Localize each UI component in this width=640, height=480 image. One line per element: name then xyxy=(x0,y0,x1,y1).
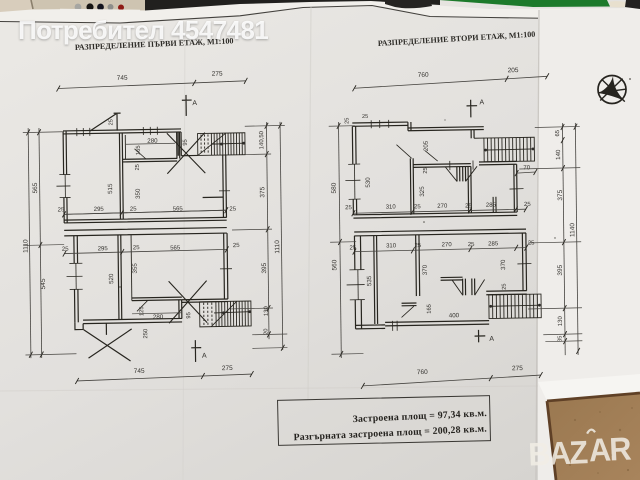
svg-text:1140: 1140 xyxy=(569,223,576,237)
svg-text:535: 535 xyxy=(366,275,373,286)
svg-text:395: 395 xyxy=(557,264,564,275)
svg-text:325: 325 xyxy=(419,186,426,197)
svg-text:25: 25 xyxy=(135,164,141,170)
svg-text:565: 565 xyxy=(170,245,181,251)
svg-text:275: 275 xyxy=(212,71,223,78)
svg-text:Потребител 4547481: Потребител 4547481 xyxy=(18,15,268,45)
svg-text:310: 310 xyxy=(386,204,397,210)
svg-text:370: 370 xyxy=(500,259,507,270)
svg-text:25: 25 xyxy=(229,207,236,213)
svg-text:A: A xyxy=(480,99,485,106)
svg-text:25: 25 xyxy=(502,283,508,289)
svg-text:25: 25 xyxy=(423,167,429,173)
svg-text:515: 515 xyxy=(107,183,114,194)
svg-text:565: 565 xyxy=(173,206,184,212)
svg-text:25: 25 xyxy=(345,205,352,211)
svg-text:560: 560 xyxy=(331,259,338,270)
svg-text:70: 70 xyxy=(523,165,530,171)
svg-text:375: 375 xyxy=(259,186,266,197)
svg-text:25: 25 xyxy=(524,202,531,208)
svg-text:25: 25 xyxy=(344,118,350,124)
svg-text:520: 520 xyxy=(108,273,115,284)
svg-text:280: 280 xyxy=(147,138,158,145)
svg-text:355: 355 xyxy=(132,263,139,274)
svg-text:A: A xyxy=(489,336,494,343)
svg-text:275: 275 xyxy=(222,365,233,372)
svg-text:545: 545 xyxy=(40,278,47,289)
svg-text:25: 25 xyxy=(362,114,368,120)
svg-text:760: 760 xyxy=(418,72,429,79)
svg-text:530: 530 xyxy=(365,177,372,188)
svg-text:375: 375 xyxy=(557,189,564,200)
svg-text:580: 580 xyxy=(331,182,338,193)
svg-text:25: 25 xyxy=(233,243,240,249)
svg-text:25: 25 xyxy=(58,207,65,213)
svg-text:395: 395 xyxy=(261,262,268,273)
svg-text:95: 95 xyxy=(183,139,189,146)
svg-text:165: 165 xyxy=(427,304,433,314)
svg-text:140: 140 xyxy=(555,149,562,160)
svg-text:565: 565 xyxy=(32,182,39,193)
svg-text:1110: 1110 xyxy=(274,240,281,254)
svg-text:760: 760 xyxy=(417,369,428,376)
svg-text:A: A xyxy=(192,100,197,107)
svg-text:285: 285 xyxy=(486,203,497,209)
svg-text:275: 275 xyxy=(512,365,523,372)
svg-text:270: 270 xyxy=(437,204,448,210)
svg-text:25: 25 xyxy=(465,203,472,209)
svg-text:25: 25 xyxy=(414,243,421,249)
svg-text:270: 270 xyxy=(442,242,453,248)
svg-text:BAZ: BAZ xyxy=(528,433,589,473)
svg-text:295: 295 xyxy=(94,207,105,213)
svg-text:25: 25 xyxy=(130,207,137,213)
svg-text:350: 350 xyxy=(135,188,142,199)
svg-text:745: 745 xyxy=(134,368,145,375)
svg-text:20: 20 xyxy=(263,328,269,334)
svg-text:95: 95 xyxy=(186,312,192,319)
svg-text:165: 165 xyxy=(136,145,142,155)
svg-text:A: A xyxy=(202,353,207,360)
svg-text:25: 25 xyxy=(62,247,69,253)
svg-text:25: 25 xyxy=(133,245,140,251)
svg-text:285: 285 xyxy=(488,241,499,247)
svg-text:1110: 1110 xyxy=(22,239,29,253)
svg-text:280: 280 xyxy=(153,314,164,321)
svg-text:310: 310 xyxy=(386,243,397,249)
svg-text:140,50: 140,50 xyxy=(259,130,265,149)
svg-text:295: 295 xyxy=(98,246,109,252)
svg-text:205: 205 xyxy=(423,140,430,151)
svg-text:745: 745 xyxy=(117,75,128,82)
svg-text:250: 250 xyxy=(143,329,149,339)
svg-text:130: 130 xyxy=(264,305,270,316)
svg-text:25: 25 xyxy=(528,241,535,247)
svg-text:130: 130 xyxy=(558,316,564,327)
svg-text:25: 25 xyxy=(414,204,421,210)
svg-text:25: 25 xyxy=(468,242,475,248)
svg-text:25: 25 xyxy=(108,119,114,125)
svg-text:65: 65 xyxy=(555,130,561,137)
svg-text:400: 400 xyxy=(449,312,460,319)
svg-text:370: 370 xyxy=(422,264,429,275)
svg-text:125: 125 xyxy=(139,306,145,316)
svg-text:25: 25 xyxy=(349,245,356,251)
svg-text:AR: AR xyxy=(588,430,632,469)
svg-text:205: 205 xyxy=(508,67,519,74)
